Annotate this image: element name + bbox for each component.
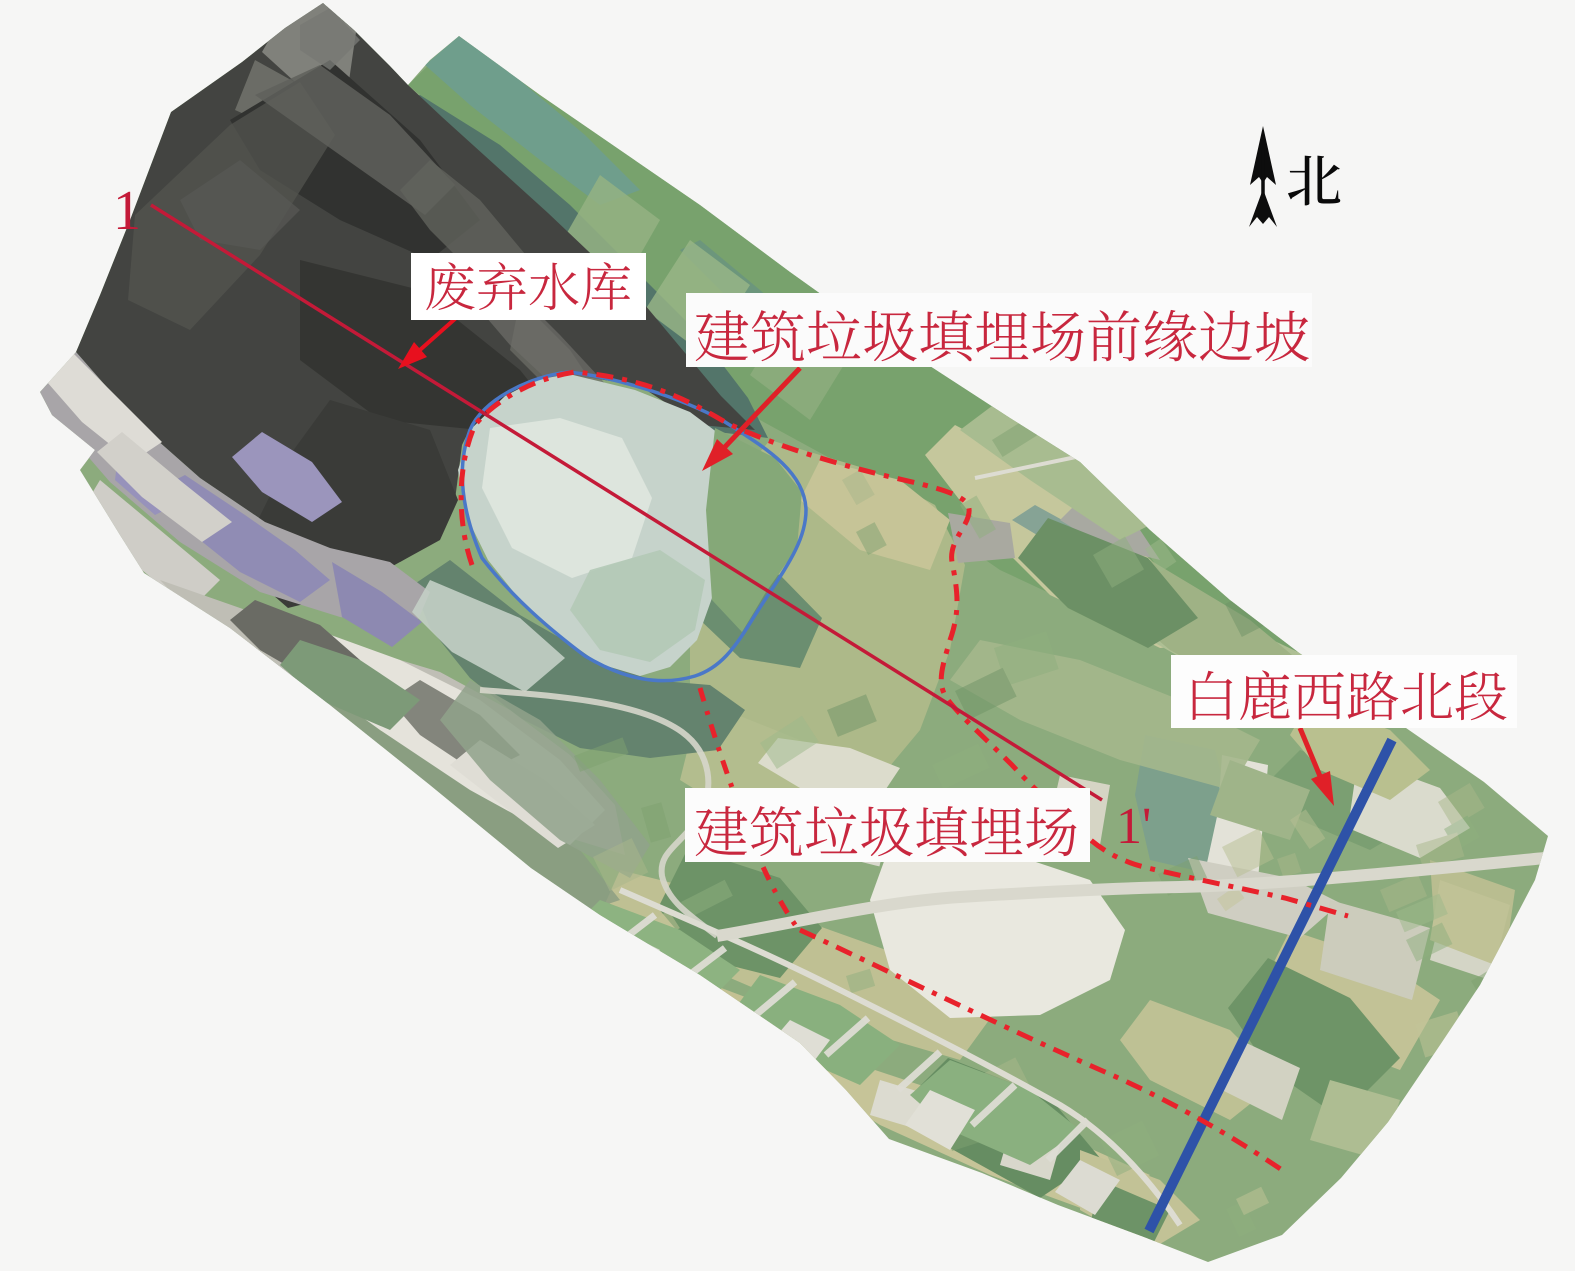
svg-text:1': 1' (1116, 798, 1151, 855)
svg-text:1: 1 (113, 180, 141, 242)
